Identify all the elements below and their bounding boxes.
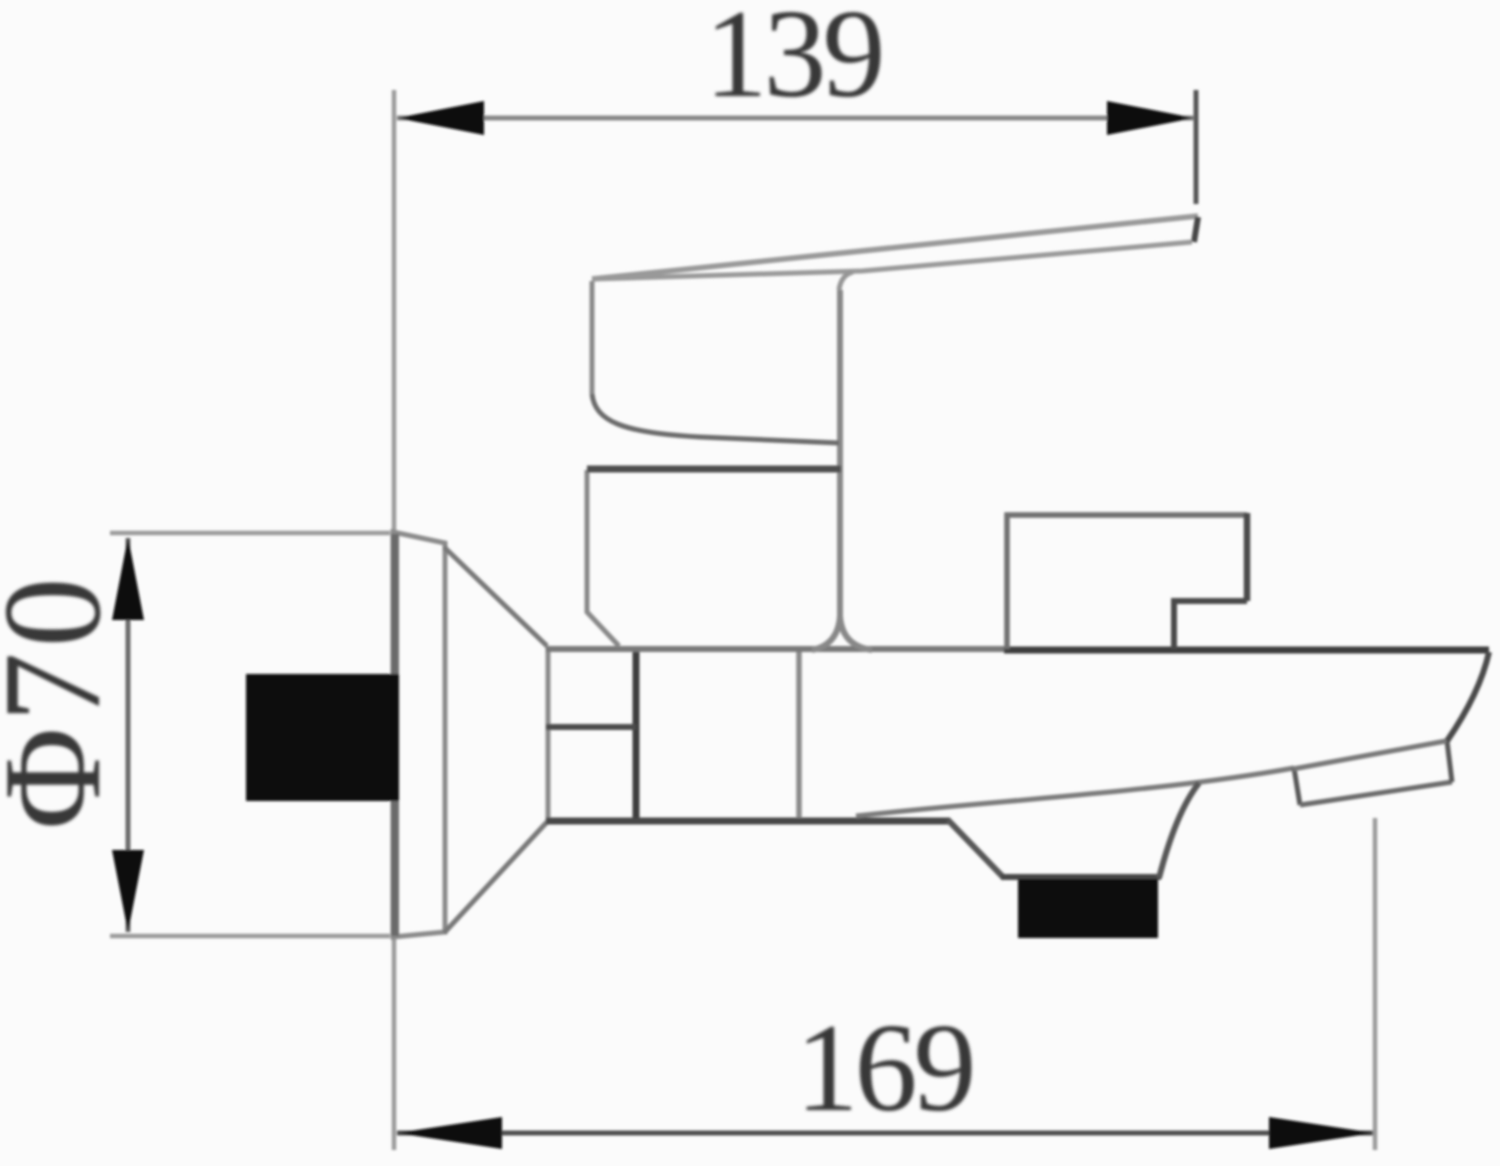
svg-text:169: 169 <box>796 999 973 1138</box>
svg-text:Φ70: Φ70 <box>0 572 130 829</box>
svg-text:139: 139 <box>705 0 882 124</box>
